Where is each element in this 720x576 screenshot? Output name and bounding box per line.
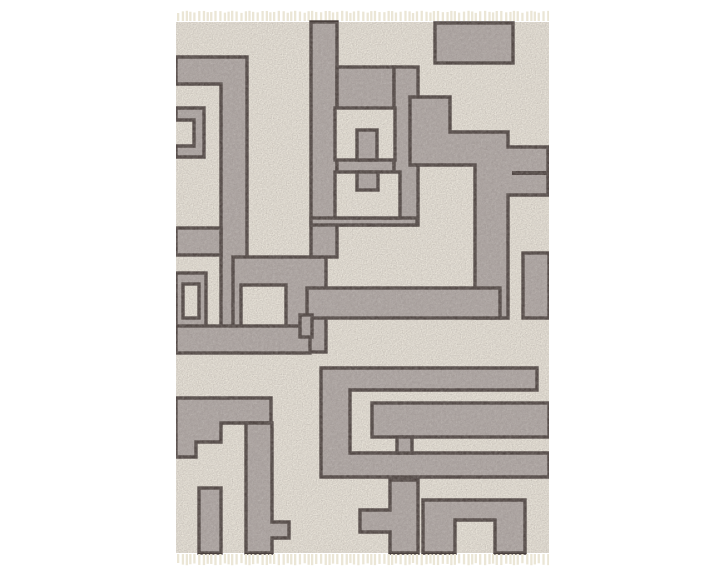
fringe-tassel <box>283 11 285 21</box>
fringe-tassel <box>203 11 205 21</box>
fringe-tassel <box>446 554 448 564</box>
fringe-tassel <box>198 554 200 565</box>
fringe-tassel <box>404 11 406 21</box>
fringe-tassel <box>383 554 385 564</box>
fringe-tassel <box>328 11 330 21</box>
fringe-tassel <box>463 554 465 564</box>
fringe-tassel <box>248 554 250 565</box>
fringe-tassel <box>261 554 263 565</box>
fringe-tassel <box>475 554 477 563</box>
fringe-tassel <box>496 11 498 21</box>
fringe-tassel <box>542 11 544 21</box>
fringe-tassel <box>530 11 532 21</box>
fringe-tassel <box>526 12 528 21</box>
fringe-tassel <box>320 554 322 564</box>
fringe-tassel <box>294 11 296 21</box>
fringe-tassel <box>488 12 490 21</box>
fringe-tassel <box>429 554 431 564</box>
fringe-tassel <box>231 554 233 565</box>
rug-product-photo <box>0 0 720 576</box>
fringe-tassel <box>207 554 209 564</box>
fringe-tassel <box>479 11 481 21</box>
fringe-tassel <box>374 11 376 21</box>
fringe-tassel <box>416 554 418 565</box>
fringe-tassel <box>240 13 242 21</box>
fringe-tassel <box>357 554 359 565</box>
fringe-tassel <box>273 554 275 564</box>
fringe-tassel <box>387 554 389 565</box>
fringe-tassel <box>496 554 498 565</box>
fringe-tassel <box>224 13 226 21</box>
fringe-tassel <box>534 554 536 564</box>
fringe-tassel <box>425 12 427 21</box>
fringe-tassel <box>257 12 259 21</box>
fringe-tassel <box>315 554 317 564</box>
fringe-tassel <box>517 554 519 565</box>
fringe-tassel <box>484 11 486 21</box>
fringe-tassel <box>454 11 456 21</box>
fringe-tassel <box>367 13 369 21</box>
fringe-tassel <box>308 554 310 565</box>
fringe-tassel <box>287 554 289 563</box>
fringe-tassel <box>513 11 515 21</box>
fringe-tassel <box>346 554 348 565</box>
rug-texture <box>176 22 549 553</box>
fringe-tassel <box>245 11 247 21</box>
fringe-tassel <box>346 11 348 21</box>
fringe-tassel <box>517 11 519 21</box>
fringe-tassel <box>214 11 216 21</box>
fringe-tassel <box>399 554 401 564</box>
fringe-tassel <box>450 554 452 565</box>
fringe-tassel <box>475 13 477 21</box>
fringe-tassel <box>278 11 280 21</box>
fringe-tassel <box>182 11 184 21</box>
fringe-tassel <box>219 11 221 21</box>
fringe-tassel <box>408 11 410 21</box>
fringe-tassel <box>177 13 179 21</box>
fringe-tassel <box>349 13 351 21</box>
fringe-tassel <box>547 554 549 565</box>
fringe-tassel <box>404 554 406 565</box>
fringe-tassel <box>198 11 200 21</box>
fringe-tassel <box>224 554 226 563</box>
fringe-tassel <box>311 554 313 565</box>
fringe-tassel <box>273 12 275 21</box>
fringe-tassel <box>294 554 296 565</box>
fringe-tassel <box>383 12 385 21</box>
fringe-tassel <box>505 12 507 21</box>
fringe-tassel <box>299 12 301 21</box>
fringe-tassel <box>219 554 221 565</box>
fringe-tassel <box>484 554 486 565</box>
fringe-tassel <box>509 12 511 21</box>
fringe-tassel <box>437 11 439 21</box>
fringe-tassel <box>290 554 292 564</box>
rug-fringe-bottom <box>177 554 549 565</box>
fringe-tassel <box>399 12 401 21</box>
fringe-tassel <box>362 554 364 564</box>
fringe-tassel <box>442 12 444 21</box>
fringe-tassel <box>252 12 254 21</box>
fringe-tassel <box>186 554 188 565</box>
fringe-tassel <box>534 12 536 21</box>
fringe-tassel <box>182 554 184 565</box>
fringe-tassel <box>320 12 322 21</box>
fringe-tassel <box>500 11 502 21</box>
fringe-tassel <box>269 554 271 564</box>
fringe-tassel <box>207 12 209 21</box>
fringe-tassel <box>308 11 310 21</box>
fringe-tassel <box>467 554 469 565</box>
fringe-tassel <box>203 554 205 565</box>
fringe-tassel <box>521 554 523 563</box>
fringe-tassel <box>261 11 263 21</box>
fringe-tassel <box>332 554 334 564</box>
fringe-tassel <box>467 11 469 21</box>
fringe-tassel <box>235 554 237 565</box>
fringe-tassel <box>269 12 271 21</box>
fringe-tassel <box>227 554 229 564</box>
fringe-tassel <box>357 11 359 21</box>
fringe-tassel <box>193 554 195 563</box>
fringe-tassel <box>210 12 212 21</box>
fringe-tassel <box>370 554 372 565</box>
fringe-tassel <box>542 554 544 565</box>
fringe-tassel <box>189 554 191 564</box>
fringe-tassel <box>509 554 511 564</box>
fringe-tassel <box>336 12 338 21</box>
fringe-tassel <box>328 554 330 565</box>
fringe-tassel <box>492 554 494 564</box>
fringe-tassel <box>505 554 507 564</box>
fringe-tassel <box>311 11 313 21</box>
fringe-tassel <box>349 554 351 563</box>
fringe-tassel <box>227 12 229 21</box>
fringe-tassel <box>538 13 540 21</box>
fringe-tassel <box>395 554 397 563</box>
fringe-tassel <box>374 554 376 565</box>
fringe-tassel <box>538 554 540 563</box>
fringe-tassel <box>454 554 456 565</box>
fringe-tassel <box>500 554 502 565</box>
fringe-tassel <box>341 554 343 565</box>
fringe-tassel <box>446 12 448 21</box>
fringe-tassel <box>362 12 364 21</box>
fringe-tassel <box>412 13 414 21</box>
fringe-tassel <box>437 554 439 565</box>
fringe-tassel <box>245 554 247 565</box>
fringe-tassel <box>299 554 301 564</box>
fringe-tassel <box>412 554 414 563</box>
fringe-tassel <box>332 12 334 21</box>
fringe-tassel <box>287 13 289 21</box>
fringe-tassel <box>252 554 254 564</box>
fringe-tassel <box>214 554 216 565</box>
fringe-tassel <box>304 13 306 21</box>
fringe-tassel <box>235 11 237 21</box>
fringe-tassel <box>421 554 423 565</box>
fringe-tassel <box>463 12 465 21</box>
fringe-tassel <box>479 554 481 565</box>
fringe-tassel <box>231 11 233 21</box>
fringe-tassel <box>325 554 327 565</box>
fringe-tassel <box>391 11 393 21</box>
fringe-tassel <box>378 554 380 564</box>
fringe-tassel <box>367 554 369 563</box>
fringe-tassel <box>315 12 317 21</box>
fringe-tassel <box>341 11 343 21</box>
fringe-tassel <box>278 554 280 565</box>
fringe-tassel <box>429 12 431 21</box>
fringe-tassel <box>458 13 460 21</box>
fringe-tassel <box>353 554 355 565</box>
fringe-tassel <box>526 554 528 564</box>
fringe-tassel <box>513 554 515 565</box>
fringe-tassel <box>547 11 549 21</box>
fringe-tassel <box>387 11 389 21</box>
fringe-tassel <box>304 554 306 563</box>
fringe-tassel <box>425 554 427 564</box>
fringe-tassel <box>471 11 473 21</box>
fringe-tassel <box>193 13 195 21</box>
fringe-tassel <box>450 11 452 21</box>
fringe-tassel <box>421 11 423 21</box>
fringe-tassel <box>266 11 268 21</box>
fringe-tassel <box>530 554 532 565</box>
fringe-tassel <box>177 554 179 563</box>
fringe-tassel <box>492 12 494 21</box>
fringe-tassel <box>442 554 444 564</box>
fringe-tassel <box>408 554 410 565</box>
fringe-tassel <box>210 554 212 564</box>
fringe-tassel <box>458 554 460 563</box>
fringe-tassel <box>471 554 473 565</box>
fringe-tassel <box>283 554 285 565</box>
rug-fringe-top <box>177 11 549 21</box>
fringe-tassel <box>186 11 188 21</box>
fringe-tassel <box>240 554 242 563</box>
fringe-tassel <box>290 12 292 21</box>
fringe-tassel <box>257 554 259 564</box>
fringe-tassel <box>266 554 268 565</box>
fringe-tassel <box>189 12 191 21</box>
fringe-tassel <box>370 11 372 21</box>
fringe-tassel <box>336 554 338 564</box>
fringe-tassel <box>248 11 250 21</box>
fringe-tassel <box>395 13 397 21</box>
fringe-tassel <box>433 554 435 565</box>
fringe-tassel <box>353 11 355 21</box>
fringe-tassel <box>378 12 380 21</box>
fringe-tassel <box>325 11 327 21</box>
fringe-tassel <box>521 13 523 21</box>
fringe-tassel <box>416 11 418 21</box>
fringe-tassel <box>433 11 435 21</box>
rug-image <box>176 10 549 566</box>
fringe-tassel <box>488 554 490 564</box>
product-image-page <box>0 0 720 576</box>
fringe-tassel <box>391 554 393 565</box>
